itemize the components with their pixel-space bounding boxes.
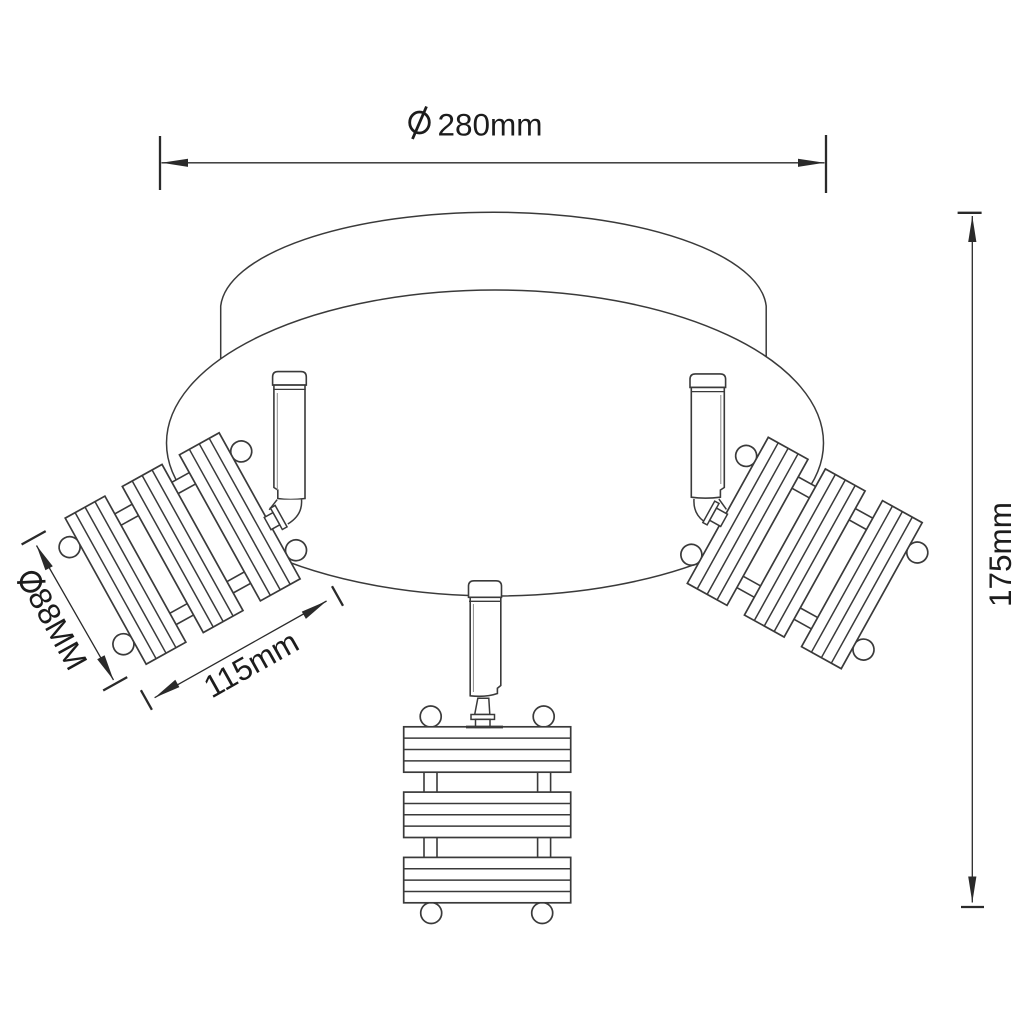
svg-text:175mm: 175mm [982,502,1018,607]
svg-text:280mm: 280mm [438,107,543,143]
